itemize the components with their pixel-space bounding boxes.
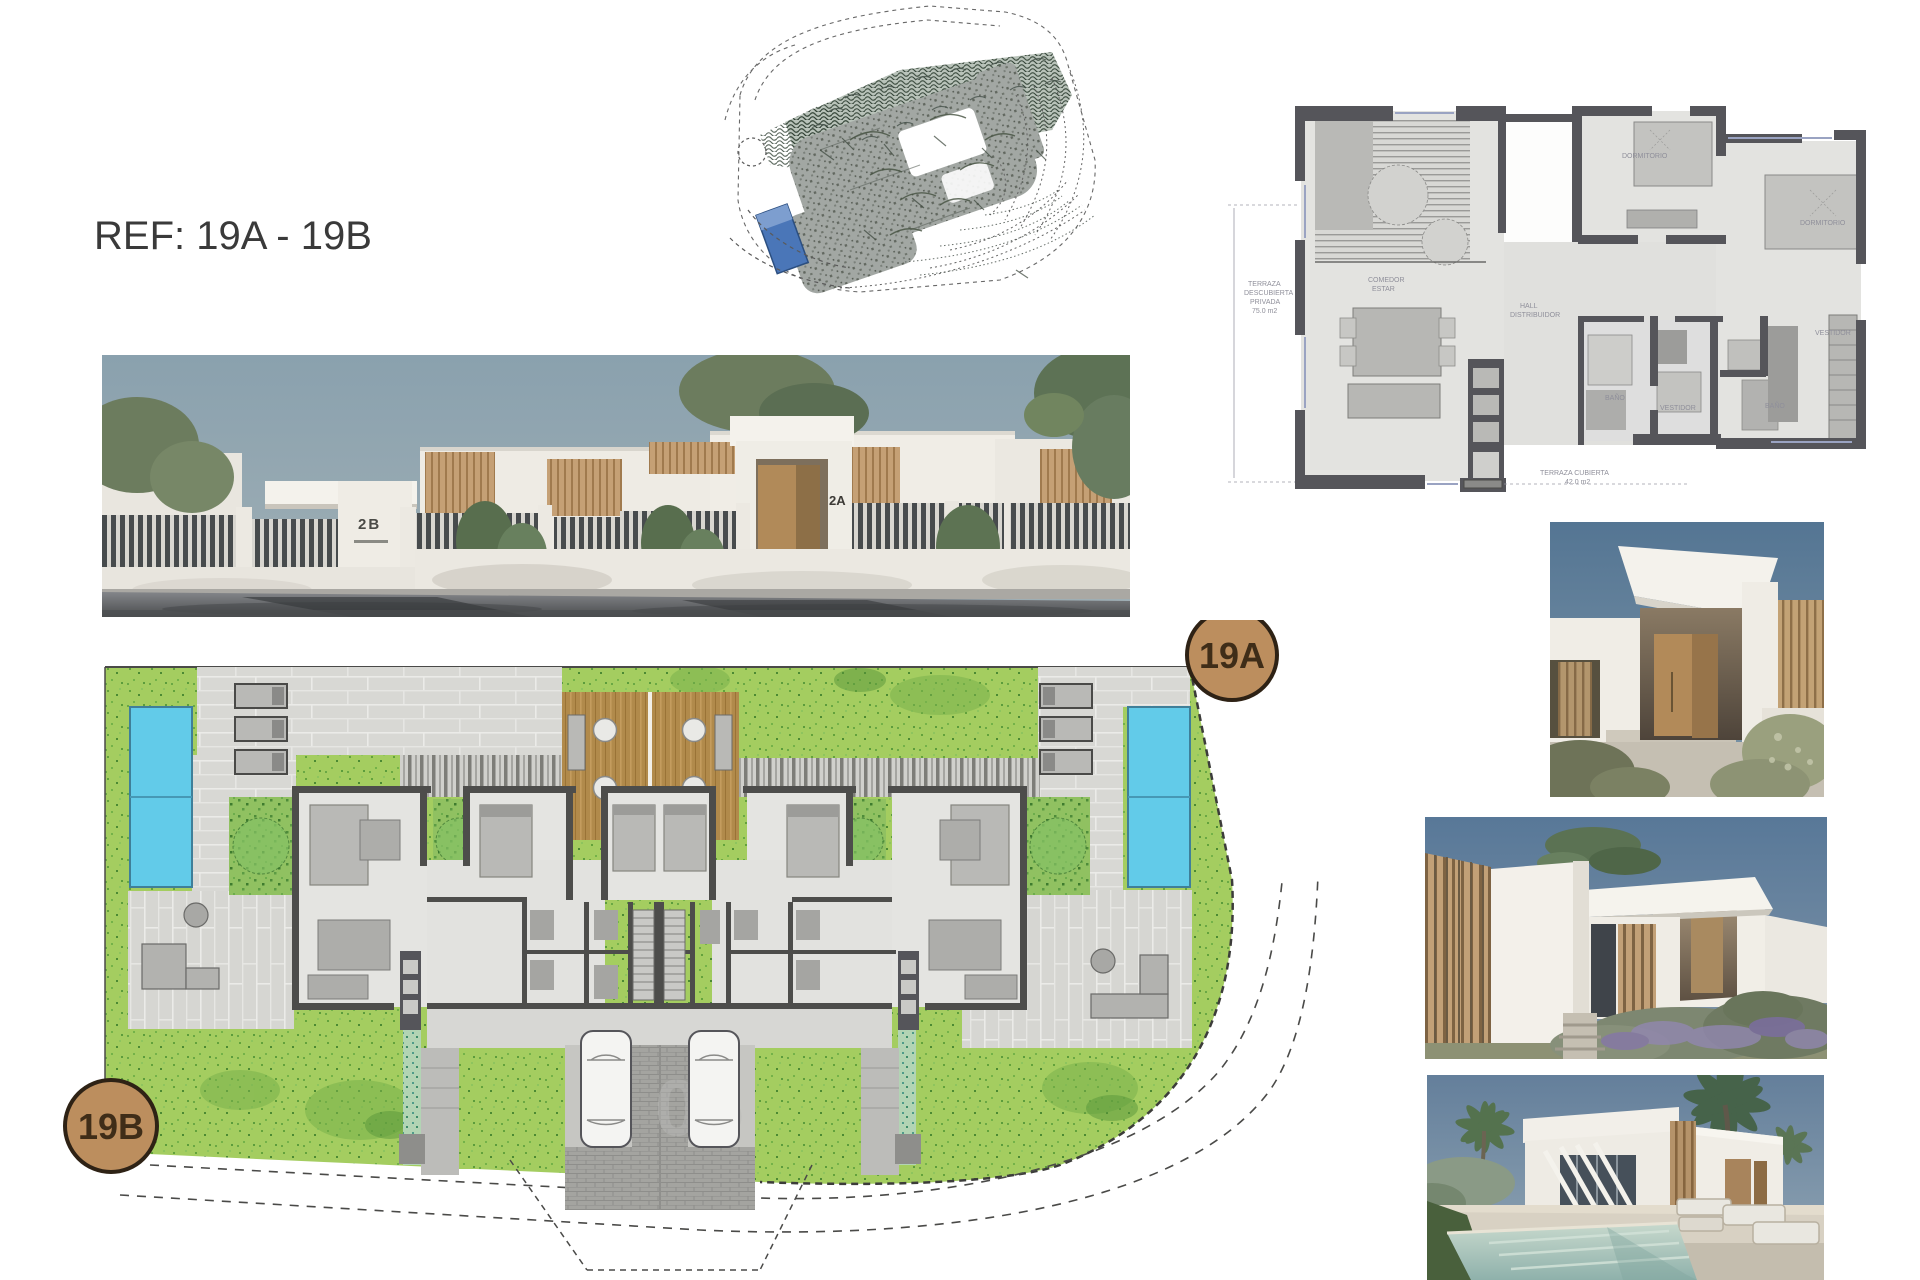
svg-text:DORMITORIO: DORMITORIO	[1800, 220, 1846, 227]
svg-text:75.0 m2: 75.0 m2	[1252, 308, 1277, 315]
svg-text:DORMITORIO: DORMITORIO	[1622, 153, 1668, 160]
svg-text:2A: 2A	[829, 493, 846, 508]
svg-text:DISTRIBUIDOR: DISTRIBUIDOR	[1510, 312, 1560, 319]
svg-text:DESCUBIERTA: DESCUBIERTA	[1244, 290, 1293, 297]
svg-text:PRIVADA: PRIVADA	[1250, 299, 1281, 306]
svg-text:VESTIDOR: VESTIDOR	[1660, 405, 1696, 412]
svg-text:BAÑO: BAÑO	[1765, 401, 1785, 410]
svg-text:HALL: HALL	[1520, 303, 1538, 310]
svg-text:TERRAZA CUBIERTA: TERRAZA CUBIERTA	[1540, 470, 1609, 477]
svg-text:VESTIDOR: VESTIDOR	[1815, 330, 1851, 337]
svg-text:COMEDOR: COMEDOR	[1368, 277, 1405, 284]
svg-text:19B: 19B	[78, 1106, 144, 1147]
svg-text:BAÑO: BAÑO	[1605, 393, 1625, 402]
svg-text:2B: 2B	[358, 516, 381, 533]
svg-text:19A: 19A	[1199, 635, 1265, 676]
svg-text:TERRAZA: TERRAZA	[1248, 281, 1281, 288]
svg-text:ESTAR: ESTAR	[1372, 286, 1395, 293]
svg-text:42.0 m2: 42.0 m2	[1565, 479, 1590, 486]
